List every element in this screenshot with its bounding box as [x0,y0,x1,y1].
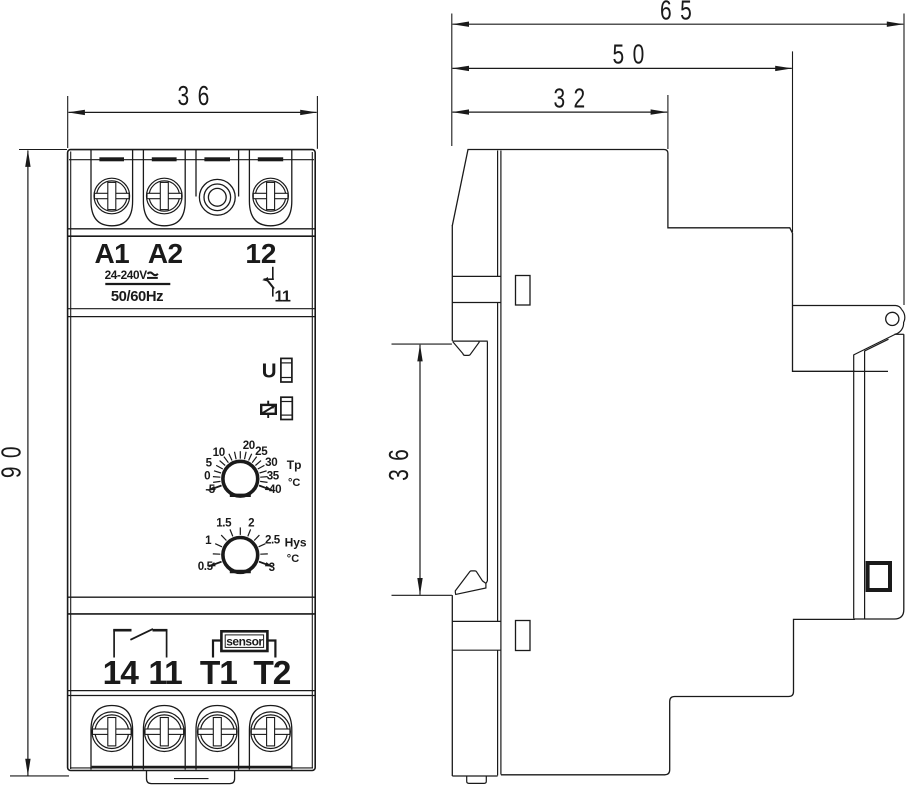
svg-text:20: 20 [243,439,255,452]
svg-text:10: 10 [213,446,225,459]
svg-text:3: 3 [178,81,190,111]
svg-text:35: 35 [267,470,280,483]
svg-text:°C: °C [287,553,299,565]
svg-text:5: 5 [680,0,692,26]
svg-text:11: 11 [275,289,292,306]
svg-text:2.5: 2.5 [265,534,281,547]
svg-text:24-240V: 24-240V [105,268,148,282]
svg-text:0: 0 [633,40,645,70]
svg-text:0: 0 [0,446,27,458]
svg-text:3: 3 [269,561,276,574]
svg-text:30: 30 [265,456,277,469]
svg-text:3: 3 [553,84,565,114]
svg-text:5: 5 [613,40,625,70]
svg-text:Hys: Hys [285,535,307,549]
svg-text:°C: °C [288,477,300,489]
svg-text:0: 0 [204,470,210,483]
svg-text:14: 14 [103,655,140,692]
svg-text:3: 3 [385,469,415,481]
svg-text:5: 5 [206,457,213,470]
svg-text:2: 2 [248,517,254,530]
svg-text:-5: -5 [205,483,215,496]
svg-text:6: 6 [660,0,672,26]
svg-text:50/60Hz: 50/60Hz [111,289,163,305]
svg-text:12: 12 [245,238,276,269]
svg-text:1: 1 [205,534,212,547]
svg-text:2: 2 [573,84,585,114]
svg-text:Tp: Tp [287,458,302,472]
svg-text:U: U [262,360,277,383]
svg-text:6: 6 [385,449,415,461]
svg-text:11: 11 [148,655,182,692]
svg-text:9: 9 [0,466,27,478]
svg-text:0.5: 0.5 [198,560,214,573]
svg-text:sensor: sensor [226,635,263,649]
svg-text:A2: A2 [148,238,183,269]
svg-text:T2: T2 [253,655,290,692]
svg-text:6: 6 [198,81,210,111]
svg-text:A1: A1 [95,238,130,269]
svg-text:T1: T1 [200,655,237,692]
svg-text:40: 40 [269,483,281,496]
svg-text:1.5: 1.5 [216,517,232,530]
